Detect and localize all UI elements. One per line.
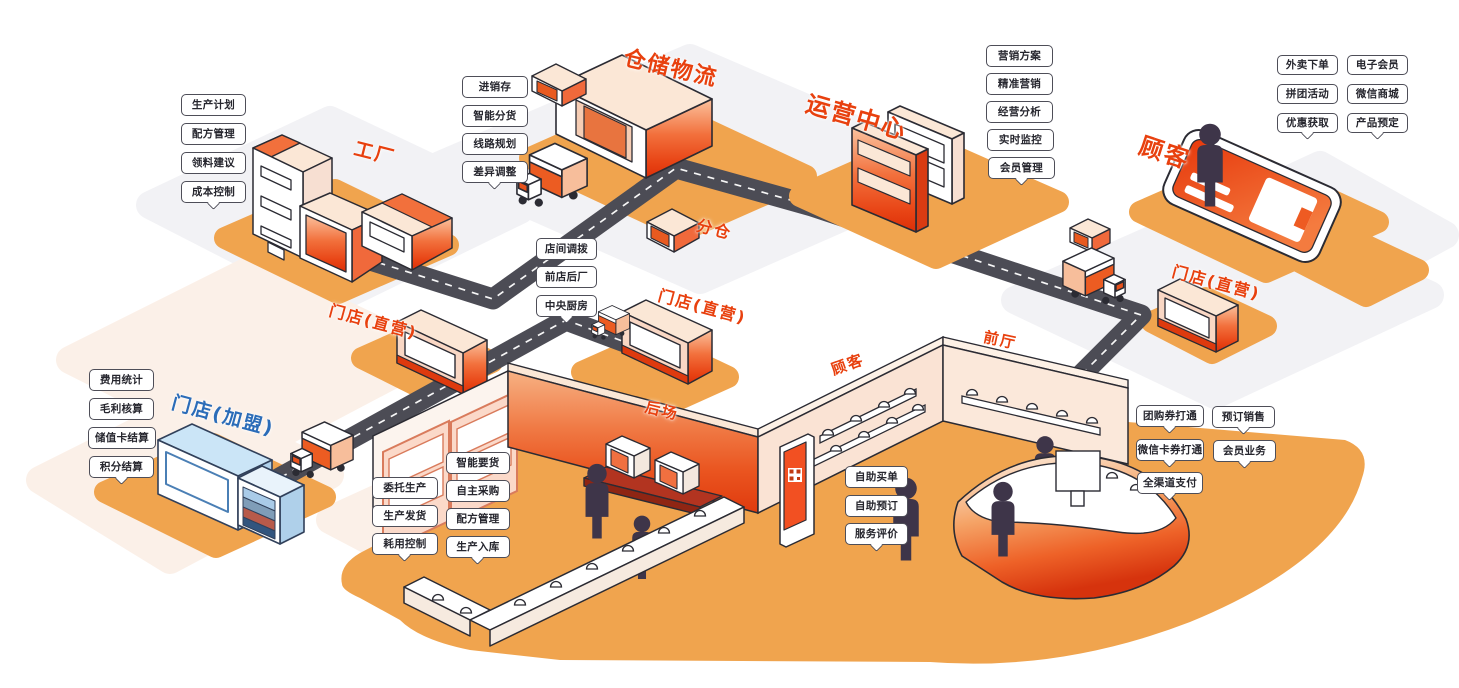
warehouse-label-2: 智能分货	[462, 105, 528, 127]
franchise-label-3: 储值卡结算	[88, 427, 156, 449]
self-service-label-2: 自助预订	[845, 495, 908, 517]
sales-label-1: 预订销售	[1212, 406, 1275, 428]
operations-label-3: 经营分析	[986, 101, 1053, 123]
customer-label-4: 微信商城	[1347, 84, 1408, 104]
franchise-label-4: 积分结算	[89, 456, 154, 478]
production-right-label-1: 智能要货	[446, 452, 510, 474]
isometric-retail-diagram: 工厂 仓储物流 分仓 运营中心 顾客 门店(直营) 门店(直营) 门店(直营) …	[0, 0, 1459, 688]
customer-label-5: 优惠获取	[1277, 113, 1338, 133]
factory-label-2: 配方管理	[181, 123, 246, 145]
franchise-label-2: 毛利核算	[89, 398, 154, 420]
production-right-label-3: 配方管理	[446, 508, 510, 530]
transfer-label-1: 店间调拨	[536, 238, 597, 260]
production-left-label-3: 耗用控制	[372, 533, 438, 555]
customer-label-2: 电子会员	[1347, 55, 1408, 75]
payment-label-3: 全渠道支付	[1137, 472, 1203, 494]
operations-label-4: 实时监控	[987, 129, 1054, 151]
customer-label-3: 拼团活动	[1277, 84, 1338, 104]
factory-label-1: 生产计划	[181, 94, 246, 116]
operations-label-2: 精准营销	[986, 73, 1053, 95]
warehouse-label-1: 进销存	[462, 76, 528, 98]
factory-label-3: 领料建议	[181, 152, 246, 174]
warehouse-label-3: 线路规划	[462, 133, 528, 155]
operations-label-1: 营销方案	[986, 45, 1053, 67]
franchise-label-1: 费用统计	[89, 369, 154, 391]
production-right-label-4: 生产入库	[446, 536, 510, 558]
payment-label-2: 微信卡券打通	[1136, 439, 1204, 461]
self-service-label-1: 自助买单	[845, 466, 908, 488]
production-left-label-2: 生产发货	[372, 505, 438, 527]
sales-label-2: 会员业务	[1213, 440, 1276, 462]
transfer-label-2: 前店后厂	[536, 266, 597, 288]
customer-label-1: 外卖下单	[1277, 55, 1338, 75]
production-left-label-1: 委托生产	[372, 477, 438, 499]
self-service-label-3: 服务评价	[845, 523, 908, 545]
customer-label-6: 产品预定	[1347, 113, 1408, 133]
production-right-label-2: 自主采购	[446, 480, 510, 502]
warehouse-label-4: 差异调整	[462, 161, 528, 183]
operations-label-5: 会员管理	[988, 157, 1055, 179]
payment-label-1: 团购券打通	[1136, 405, 1204, 427]
factory-label-4: 成本控制	[181, 181, 246, 203]
transfer-label-3: 中央厨房	[536, 295, 597, 317]
kiosk	[780, 434, 814, 547]
